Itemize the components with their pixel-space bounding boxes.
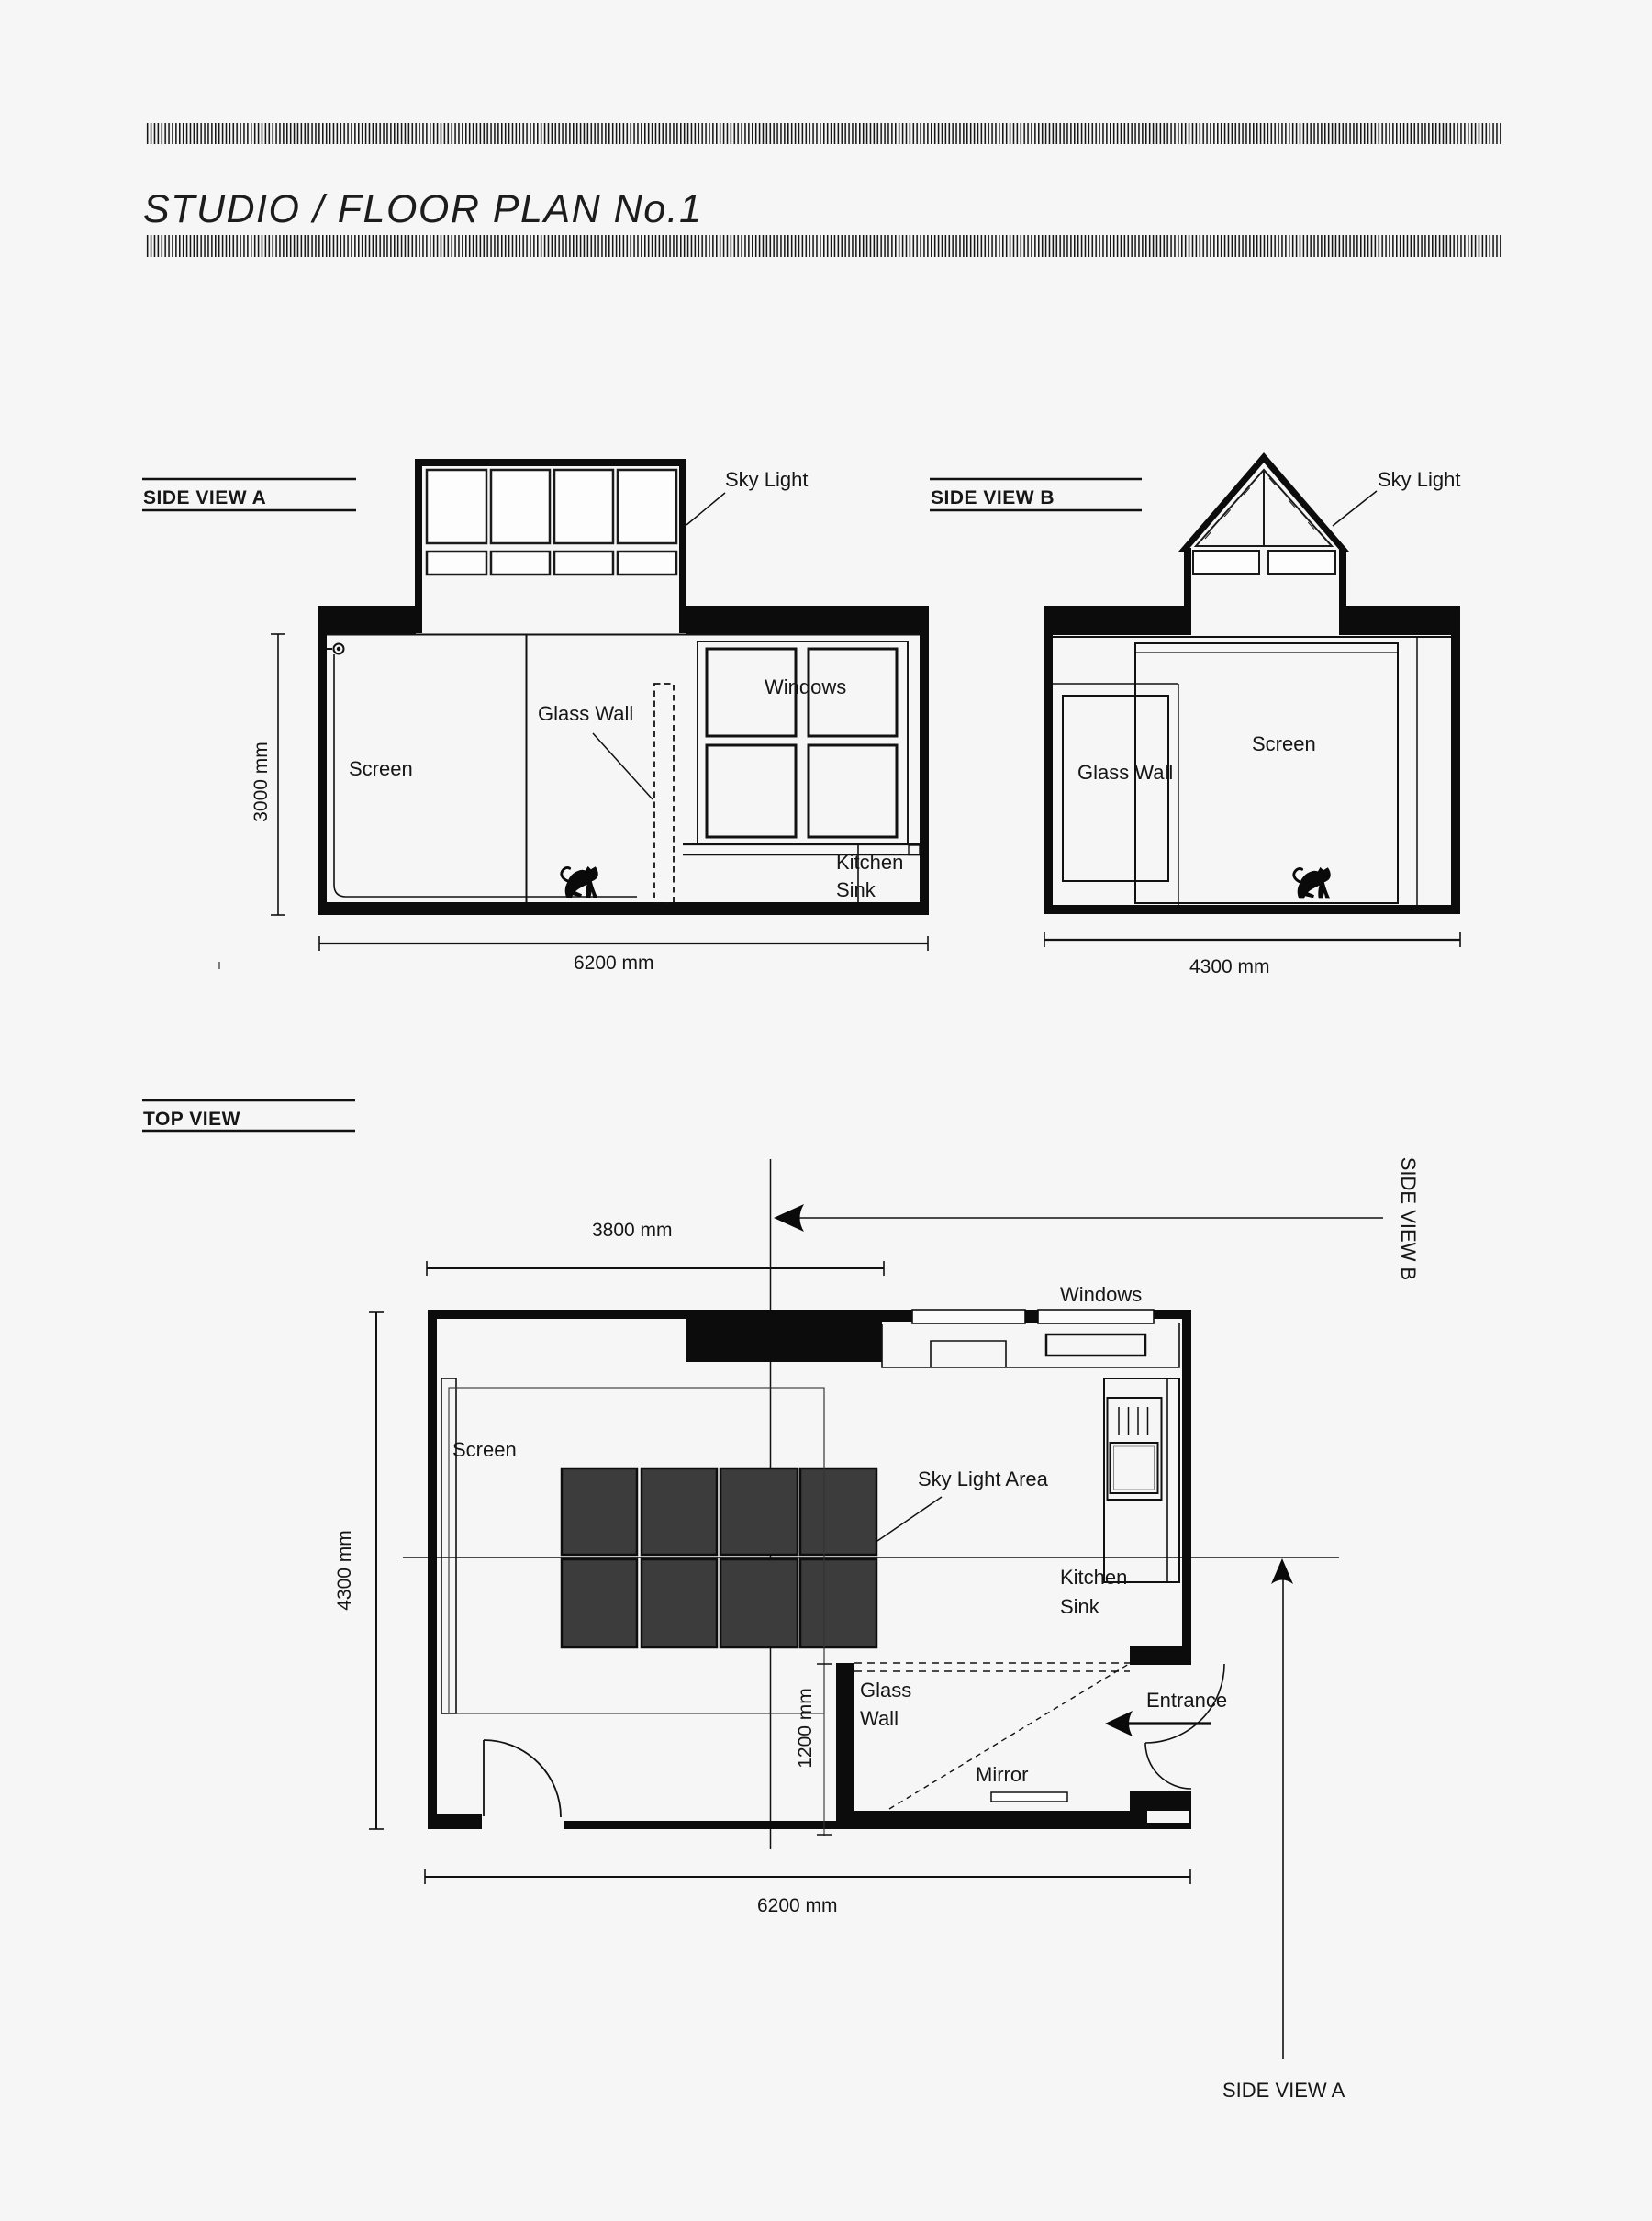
svg-text:Sky Light: Sky Light: [1378, 468, 1461, 491]
svg-text:Sink: Sink: [1060, 1595, 1100, 1618]
svg-text:Screen: Screen: [349, 757, 413, 780]
svg-text:4300 mm: 4300 mm: [1189, 956, 1270, 977]
svg-text:Sky Light: Sky Light: [725, 468, 809, 491]
svg-text:6200 mm: 6200 mm: [757, 1895, 838, 1916]
svg-text:Glass: Glass: [860, 1679, 911, 1702]
svg-text:3800 mm: 3800 mm: [592, 1220, 673, 1241]
svg-text:Wall: Wall: [860, 1707, 899, 1730]
svg-text:6200 mm: 6200 mm: [574, 953, 654, 974]
svg-text:Mirror: Mirror: [976, 1763, 1028, 1786]
svg-text:SIDE VIEW B: SIDE VIEW B: [1397, 1157, 1420, 1280]
svg-text:Windows: Windows: [765, 675, 846, 698]
svg-text:3000 mm: 3000 mm: [251, 742, 272, 822]
svg-text:Screen: Screen: [1252, 732, 1316, 755]
svg-text:Kitchen: Kitchen: [836, 851, 903, 874]
svg-text:SIDE VIEW A: SIDE VIEW A: [143, 487, 266, 508]
svg-text:Sky Light Area: Sky Light Area: [918, 1468, 1049, 1490]
svg-text:STUDIO / FLOOR PLAN No.1: STUDIO / FLOOR PLAN No.1: [143, 187, 702, 231]
svg-text:Glass Wall: Glass Wall: [538, 702, 633, 725]
svg-text:SIDE VIEW A: SIDE VIEW A: [1222, 2079, 1345, 2102]
svg-text:Windows: Windows: [1060, 1283, 1142, 1306]
svg-text:1200 mm: 1200 mm: [795, 1688, 816, 1769]
svg-text:4300 mm: 4300 mm: [334, 1530, 355, 1611]
svg-text:Screen: Screen: [452, 1438, 517, 1461]
svg-text:SIDE VIEW B: SIDE VIEW B: [931, 487, 1055, 508]
svg-text:Sink: Sink: [836, 878, 876, 901]
svg-text:TOP VIEW: TOP VIEW: [143, 1109, 240, 1130]
svg-text:Kitchen: Kitchen: [1060, 1566, 1127, 1589]
svg-text:Glass Wall: Glass Wall: [1077, 761, 1173, 784]
